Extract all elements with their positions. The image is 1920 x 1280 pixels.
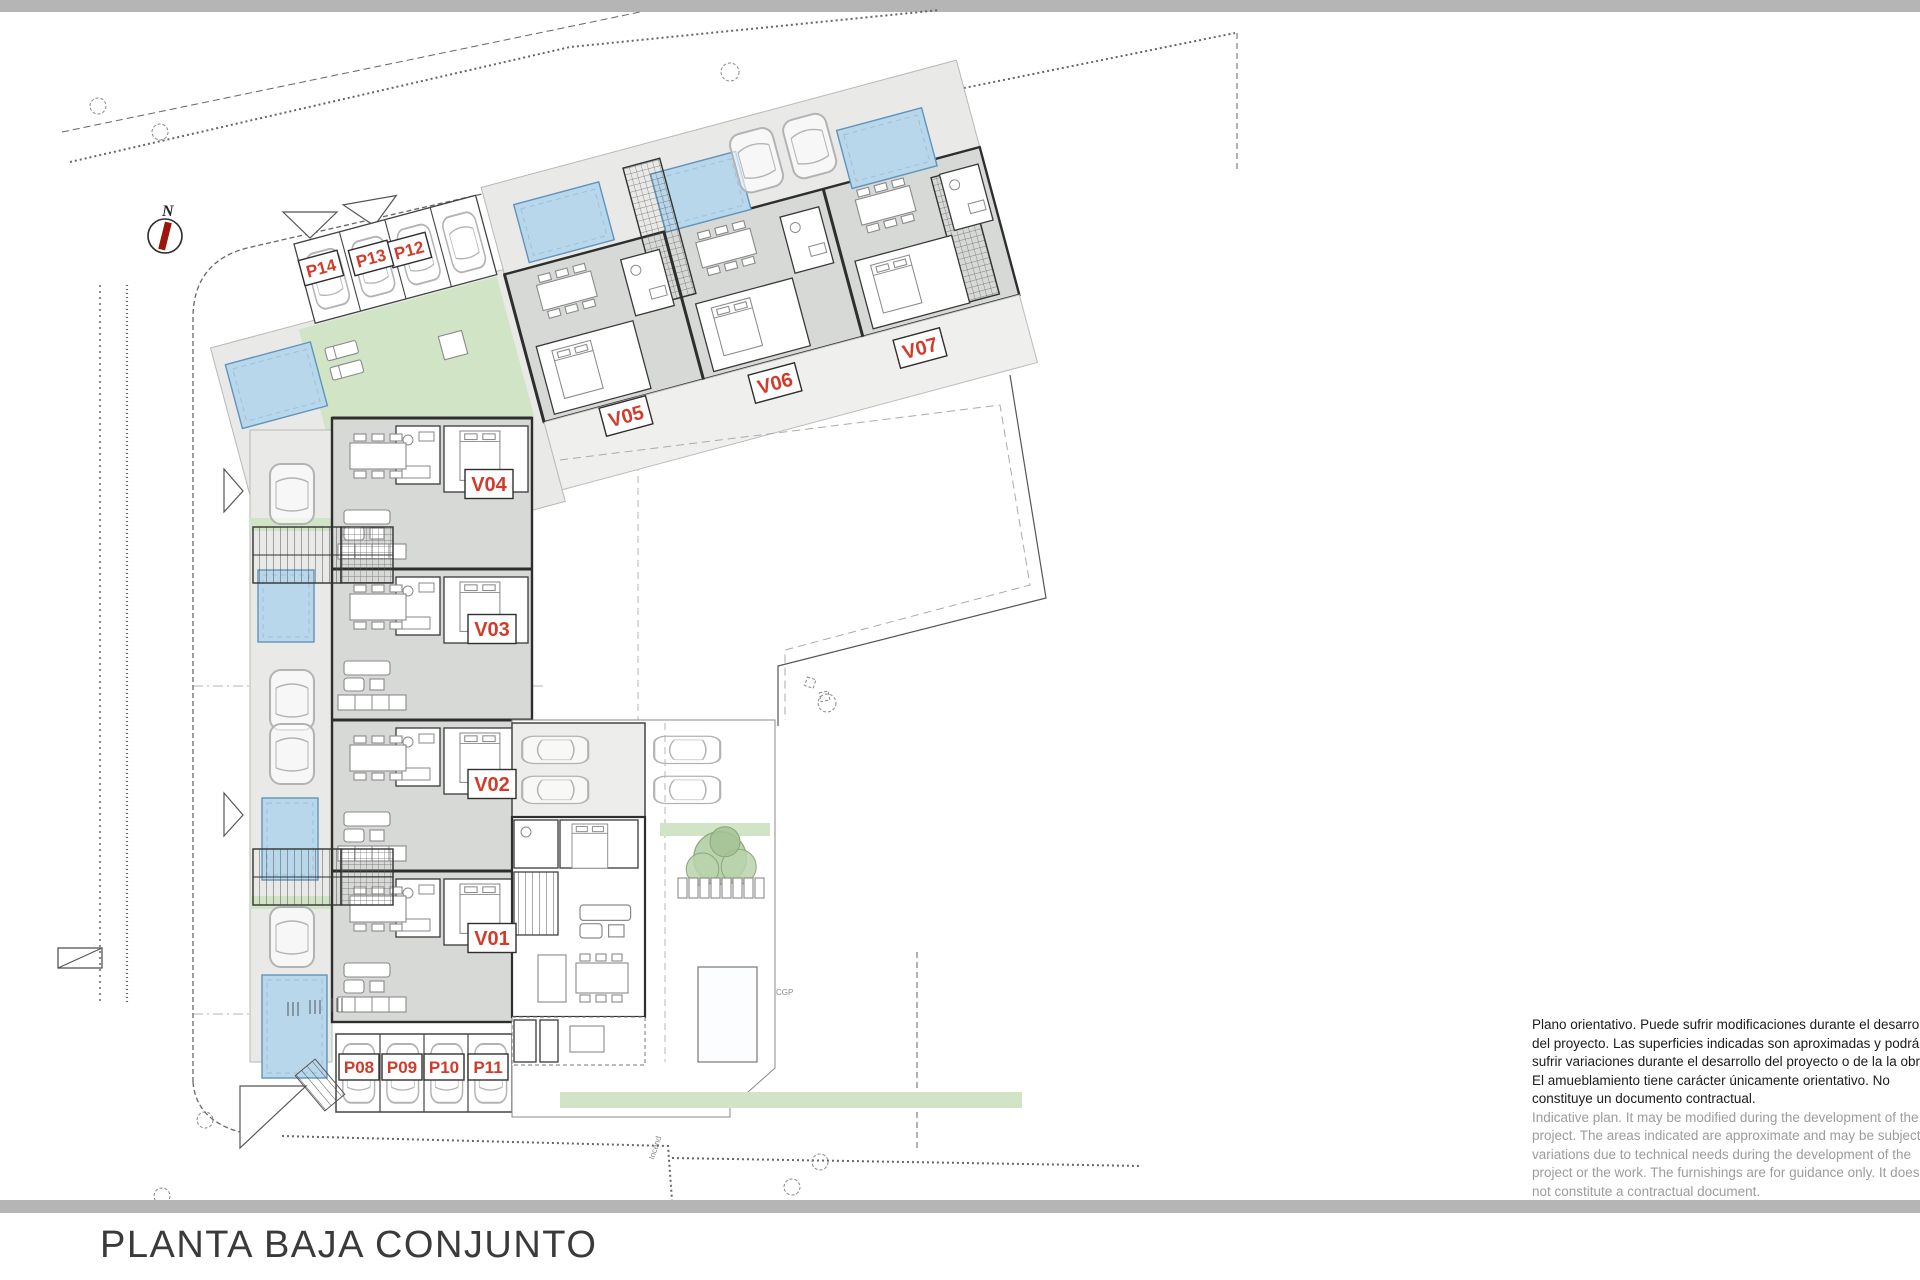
parked-car — [270, 907, 314, 967]
unit-label: V04 — [471, 474, 507, 496]
villa-plot — [512, 720, 1022, 1117]
bench-marker — [58, 948, 102, 968]
parking-label: P08 — [344, 1058, 374, 1077]
disclaimer-en-line: not constitute a contractual document. — [1532, 1183, 1918, 1202]
disclaimer-en-line: Indicative plan. It may be modified duri… — [1532, 1109, 1918, 1128]
north-label: N — [161, 203, 175, 220]
parking-label: P09 — [387, 1058, 417, 1077]
ramp-marker — [240, 1086, 306, 1148]
bottom-divider-bar — [0, 1200, 1920, 1213]
parking-label: P10 — [429, 1058, 459, 1077]
parking-label-p10: P10 — [424, 1054, 464, 1080]
disclaimer-en-line: project. The areas indicated are approxi… — [1532, 1127, 1918, 1146]
sheet-title: PLANTA BAJA CONJUNTO — [100, 1224, 597, 1267]
lap-pool-outline — [698, 967, 757, 1062]
parked-car — [270, 464, 314, 524]
unit-label: V03 — [474, 619, 510, 641]
cgp-annotation: CGP — [776, 988, 793, 997]
drawing-sheet: V01 V02 V03 V04 V05 V06 V07 P08 — [0, 0, 1920, 1280]
disclaimer-block: Plano orientativo. Puede sufrir modifica… — [1532, 1016, 1918, 1201]
villa-label-v02: V02 — [468, 770, 516, 799]
incend-annotation: Incend — [647, 1135, 663, 1161]
stairwell — [253, 849, 393, 905]
unit-label: V02 — [474, 774, 510, 796]
disclaimer-es-line: del proyecto. Las superficies indicadas … — [1532, 1035, 1918, 1054]
disclaimer-es-line: sufrir variaciones durante el desarrollo… — [1532, 1053, 1918, 1072]
disclaimer-es-line: Plano orientativo. Puede sufrir modifica… — [1532, 1016, 1918, 1035]
villa-label-v04: V04 — [465, 470, 513, 499]
unit-label: V01 — [474, 928, 510, 950]
parking-label: P11 — [473, 1058, 502, 1077]
parked-car — [270, 670, 314, 730]
disclaimer-es-line: El amueblamiento tiene carácter únicamen… — [1532, 1072, 1918, 1091]
parking-label-p09: P09 — [382, 1054, 422, 1080]
villa-stair — [514, 872, 558, 935]
villa-label-v01: V01 — [468, 924, 516, 953]
parked-car — [270, 724, 314, 784]
disclaimer-es-line: constituye un documento contractual. — [1532, 1090, 1918, 1109]
north-compass: N — [148, 203, 182, 253]
villa-label-v03: V03 — [468, 615, 516, 644]
kitchen-island — [538, 955, 566, 1002]
stairwell — [253, 527, 393, 583]
parking-label-p08: P08 — [339, 1054, 379, 1080]
parking-label-p11: P11 — [468, 1054, 508, 1080]
building-left-wing — [250, 418, 532, 1078]
disclaimer-en-line: variations due to technical needs during… — [1532, 1146, 1918, 1165]
south-green-strip — [560, 1092, 1022, 1108]
disclaimer-en-line: project or the work. The furnishings are… — [1532, 1164, 1918, 1183]
